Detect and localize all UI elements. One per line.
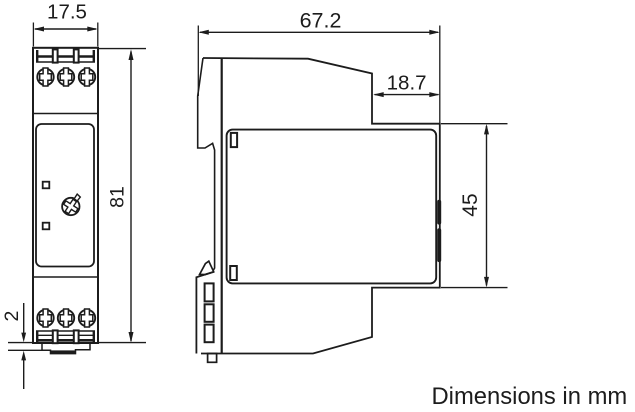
svg-text:Dimensions in mm: Dimensions in mm — [432, 383, 628, 410]
svg-text:2: 2 — [1, 311, 23, 322]
svg-text:67.2: 67.2 — [300, 9, 342, 33]
svg-text:81: 81 — [107, 186, 129, 208]
svg-text:17.5: 17.5 — [47, 1, 87, 24]
svg-text:45: 45 — [459, 193, 482, 216]
svg-text:18.7: 18.7 — [387, 72, 427, 95]
